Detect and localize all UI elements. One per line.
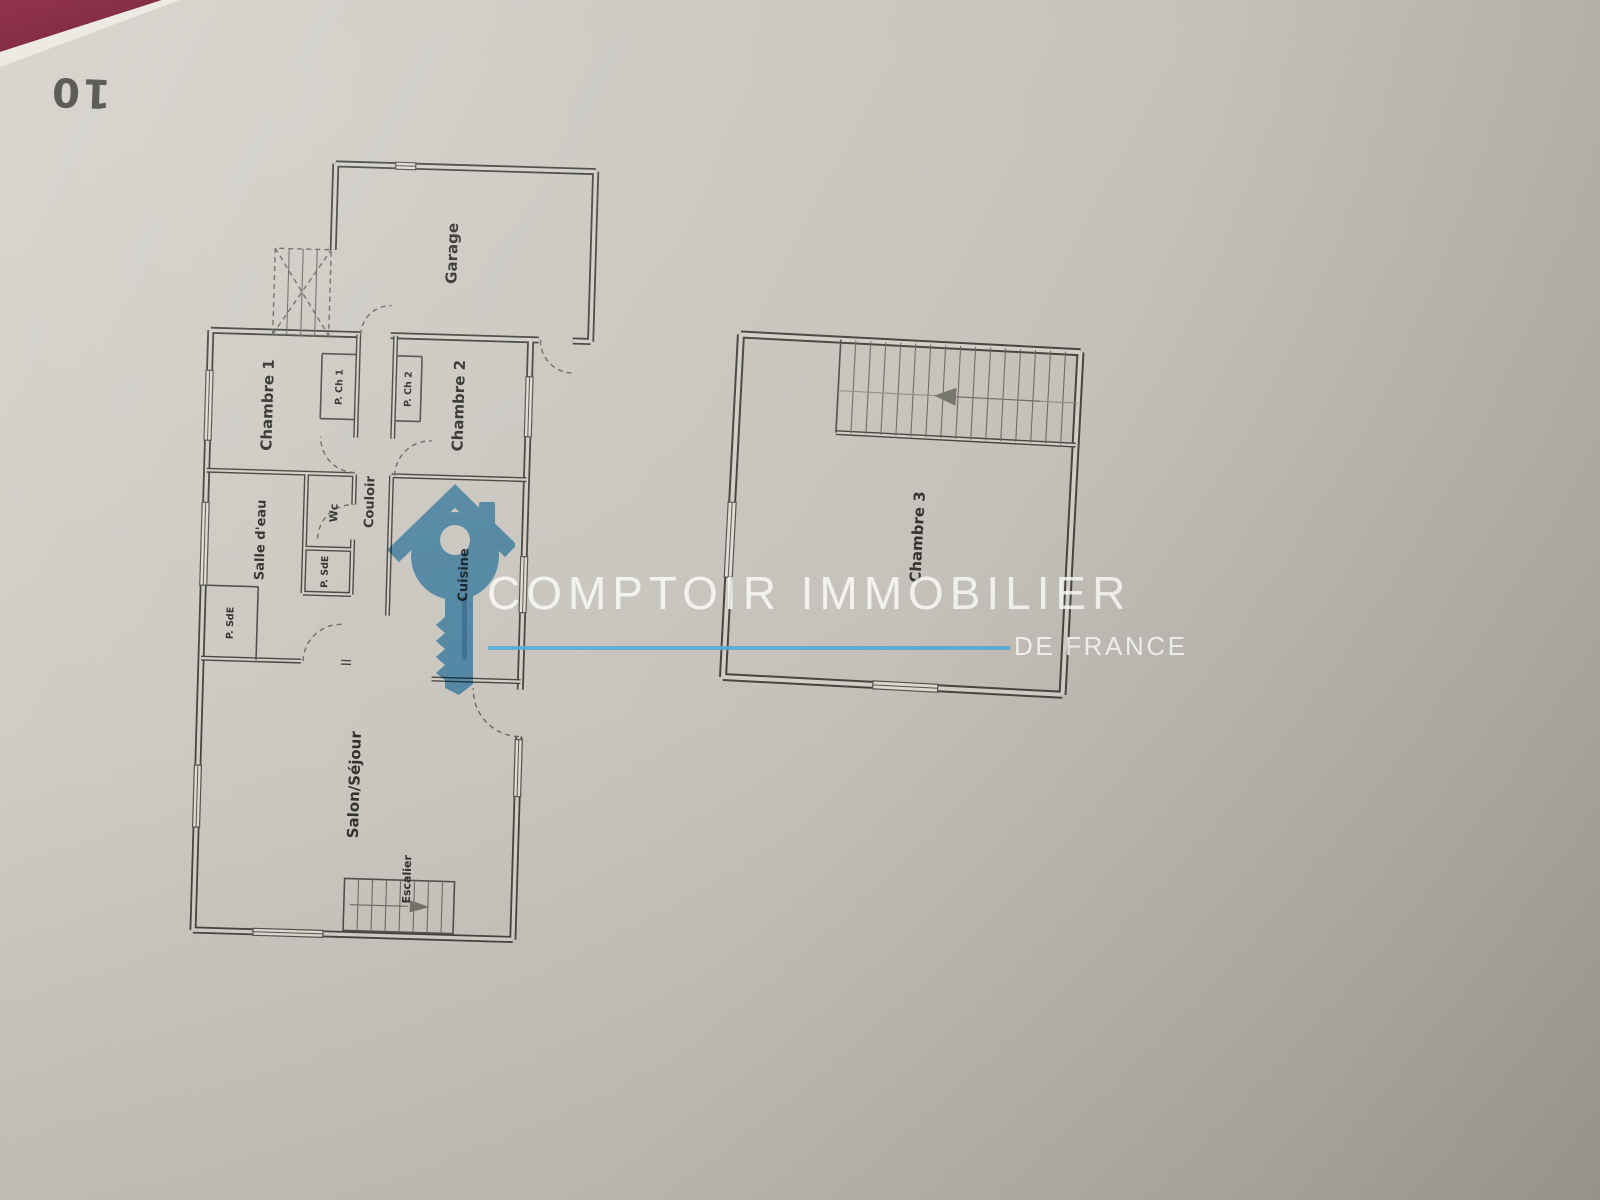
room-label-chambre1: Chambre 1 — [257, 359, 278, 451]
stairs-upper — [836, 340, 1081, 445]
key-slot — [462, 596, 467, 660]
room-label-salon: Salon/Séjour — [344, 730, 365, 838]
room-label-couloir: Couloir — [362, 475, 379, 528]
keyhole — [440, 525, 470, 555]
room-label-p-sde-b: P. SdE — [319, 555, 331, 588]
watermark-underline — [488, 646, 1010, 650]
page-number: 10 — [45, 67, 115, 117]
room-label-salle-deau: Salle d'eau — [252, 499, 269, 580]
stairs-interior — [343, 878, 454, 933]
room-label-escalier: Escalier — [400, 854, 414, 903]
watermark-brand: COMPTOIR IMMOBILIER — [487, 570, 1247, 616]
room-label-wc: Wc — [327, 503, 341, 522]
stairs-arrow-upper — [934, 387, 957, 406]
room-label-chambre2: Chambre 2 — [448, 360, 469, 452]
room-label-garage: Garage — [442, 223, 462, 284]
room-label-p-ch2: P. Ch 2 — [403, 371, 415, 407]
room-label-p-sde-a: P. SdE — [225, 607, 237, 640]
watermark-subtitle: DE FRANCE — [1014, 633, 1188, 659]
room-label-p-ch1: P. Ch 1 — [334, 369, 346, 405]
stairs-exterior — [273, 248, 332, 336]
